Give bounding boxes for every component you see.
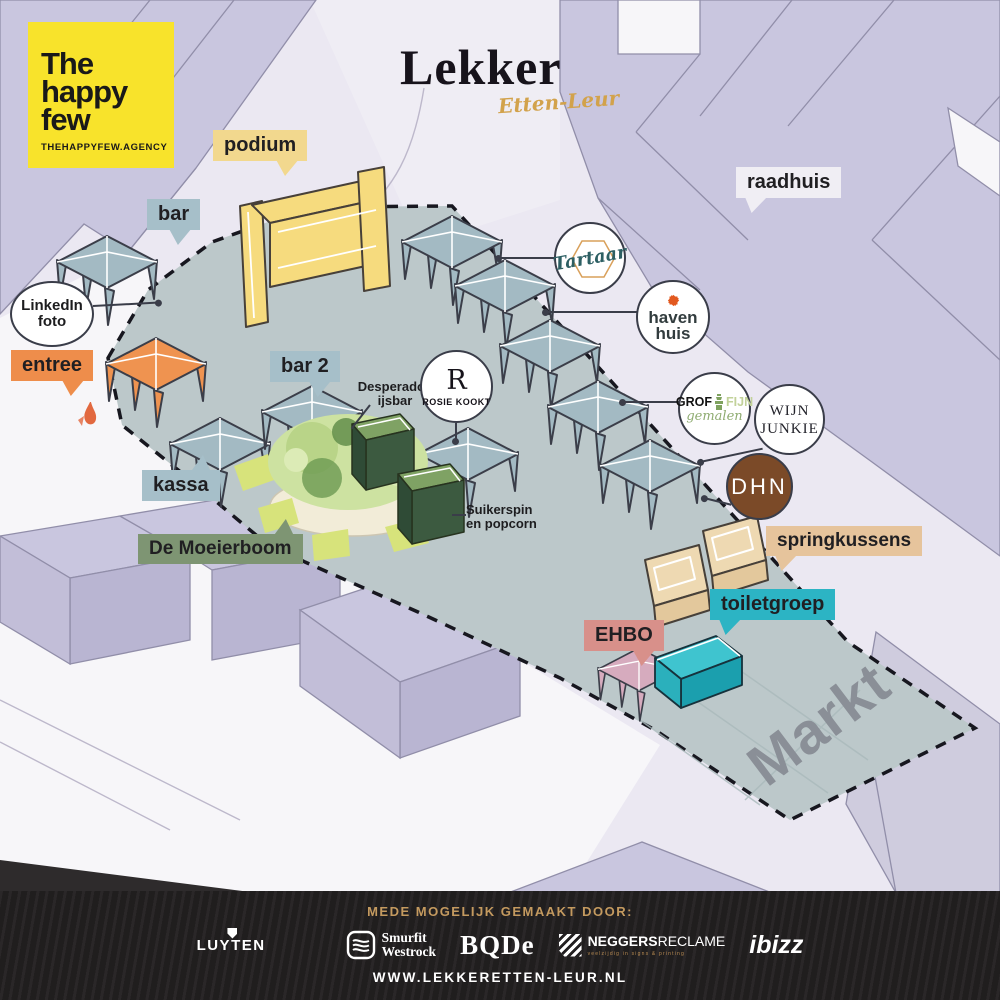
- starburst-icon: [665, 292, 682, 309]
- connector-suikerspin: [452, 514, 466, 516]
- footer-website: WWW.LEKKERETTEN-LEUR.NL: [0, 970, 1000, 985]
- tag-ehbo: EHBO: [584, 620, 664, 651]
- rosie-name: ROSIE KOOKT: [422, 397, 491, 407]
- connector-tartaar: [498, 257, 556, 259]
- badge-grof-fijn: GROF FIJN gemalen: [678, 372, 751, 445]
- happy-few-wordmark: The happy few: [28, 22, 174, 134]
- markt-area-label: Markt: [703, 628, 935, 820]
- tag-toiletgroep: toiletgroep: [710, 589, 835, 620]
- logo-ibizz: ibizz: [749, 931, 803, 960]
- badge-dhn: DHN: [726, 453, 793, 520]
- tag-raadhuis: raadhuis: [736, 167, 841, 198]
- badge-wijn-junkie: WIJN JUNKIE: [754, 384, 825, 455]
- linkedin-line1: LinkedIn: [21, 298, 83, 314]
- sponsor-logos: LUYTEN AK Smurfit Westrock BQDe NEGGERSR…: [0, 928, 1000, 962]
- havenhuis-name: haven huis: [648, 310, 697, 342]
- happy-few-line3: few: [41, 106, 174, 134]
- grinder-icon: [714, 394, 724, 410]
- event-map-poster: The happy few THEHAPPYFEW.AGENCY Lekker …: [0, 0, 1000, 1000]
- badge-rosie-kookt: R ROSIE KOOKT: [420, 350, 493, 423]
- tag-springkussens: springkussens: [766, 526, 922, 556]
- happy-few-logo: The happy few THEHAPPYFEW.AGENCY: [28, 22, 174, 168]
- badge-tartaar: Tartaar: [554, 222, 626, 294]
- tag-entree: entree: [11, 350, 93, 381]
- dhn-letters: DHN: [731, 474, 788, 500]
- grof-word2: FIJN: [726, 395, 753, 409]
- wijn-line2: JUNKIE: [760, 420, 819, 438]
- rosie-initial: R: [446, 367, 466, 394]
- linkedin-line2: foto: [38, 314, 66, 330]
- tag-podium: podium: [213, 130, 307, 161]
- suikerspin-kiosk: [398, 464, 464, 544]
- logo-ak: AK: [290, 928, 322, 962]
- tag-bar2: bar 2: [270, 351, 340, 382]
- logo-luyten: LUYTEN: [197, 937, 266, 954]
- event-logo: Lekker Etten-Leur: [400, 42, 660, 132]
- smurfit-icon: [346, 930, 376, 960]
- logo-bode: BQDe: [460, 930, 535, 961]
- linkedin-foto-circle: LinkedIn foto: [10, 281, 94, 347]
- tag-moeierboom: De Moeierboom: [138, 534, 303, 564]
- logo-smurfit-westrock: Smurfit Westrock: [346, 930, 437, 960]
- wijn-line1: WIJN: [760, 402, 819, 420]
- sponsor-footer: MEDE MOGELIJK GEMAAKT DOOR: LUYTEN AK Sm…: [0, 891, 1000, 1000]
- tag-kassa: kassa: [142, 470, 220, 501]
- note-suikerspin: Suikerspin en popcorn: [466, 503, 562, 530]
- connector-havenhuis: [545, 311, 638, 313]
- connector-rosie: [455, 423, 457, 442]
- tag-bar: bar: [147, 199, 200, 230]
- badge-havenhuis: haven huis: [636, 280, 710, 354]
- logo-neggers-reclame: NEGGERSRECLAME veelzijdig in signs & pri…: [559, 934, 726, 957]
- event-logo-title: Lekker: [400, 42, 660, 92]
- grof-word3: gemalen: [686, 409, 742, 424]
- neggers-icon: [559, 934, 582, 957]
- footer-heading: MEDE MOGELIJK GEMAAKT DOOR:: [0, 904, 1000, 919]
- grof-word1: GROF: [676, 395, 712, 409]
- connector-grof: [622, 401, 679, 403]
